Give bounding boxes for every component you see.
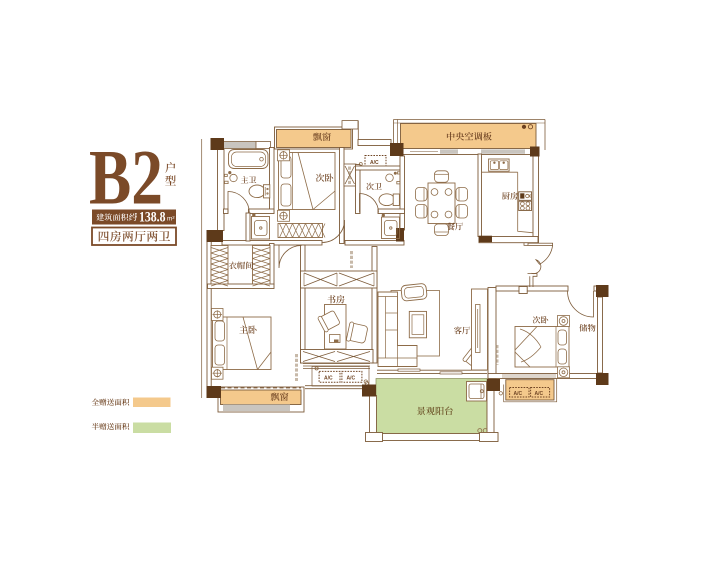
svg-text:138.8: 138.8 xyxy=(139,210,166,226)
svg-text:A/C: A/C xyxy=(324,375,333,381)
svg-text:m²: m² xyxy=(167,216,175,223)
svg-text:A/C: A/C xyxy=(347,375,356,381)
svg-text:A/C: A/C xyxy=(535,391,544,397)
svg-text:A/C: A/C xyxy=(514,391,523,397)
svg-text:B2: B2 xyxy=(89,134,163,221)
svg-text:A/C: A/C xyxy=(370,160,379,166)
